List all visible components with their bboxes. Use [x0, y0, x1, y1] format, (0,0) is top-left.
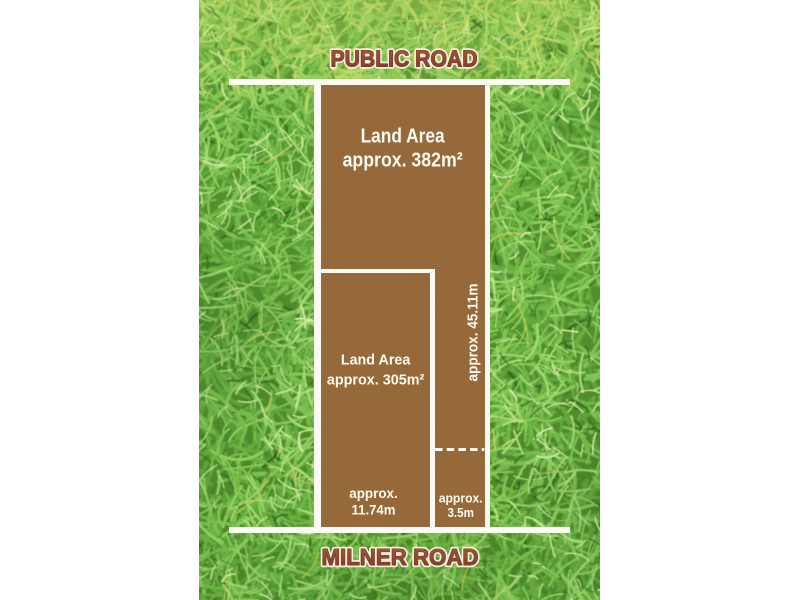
svg-text:11.74m: 11.74m	[352, 502, 396, 518]
svg-text:approx. 305m²: approx. 305m²	[327, 371, 425, 388]
svg-text:PUBLIC ROAD: PUBLIC ROAD	[331, 46, 478, 72]
svg-text:MILNER ROAD: MILNER ROAD	[322, 544, 479, 570]
svg-text:approx. 45.11m: approx. 45.11m	[465, 284, 482, 382]
svg-text:approx.: approx.	[349, 485, 398, 501]
svg-text:Land Area: Land Area	[341, 351, 411, 368]
svg-text:approx. 382m²: approx. 382m²	[343, 150, 463, 172]
svg-text:3.5m: 3.5m	[447, 505, 474, 520]
svg-text:approx.: approx.	[439, 490, 483, 505]
svg-text:Land Area: Land Area	[361, 126, 446, 148]
